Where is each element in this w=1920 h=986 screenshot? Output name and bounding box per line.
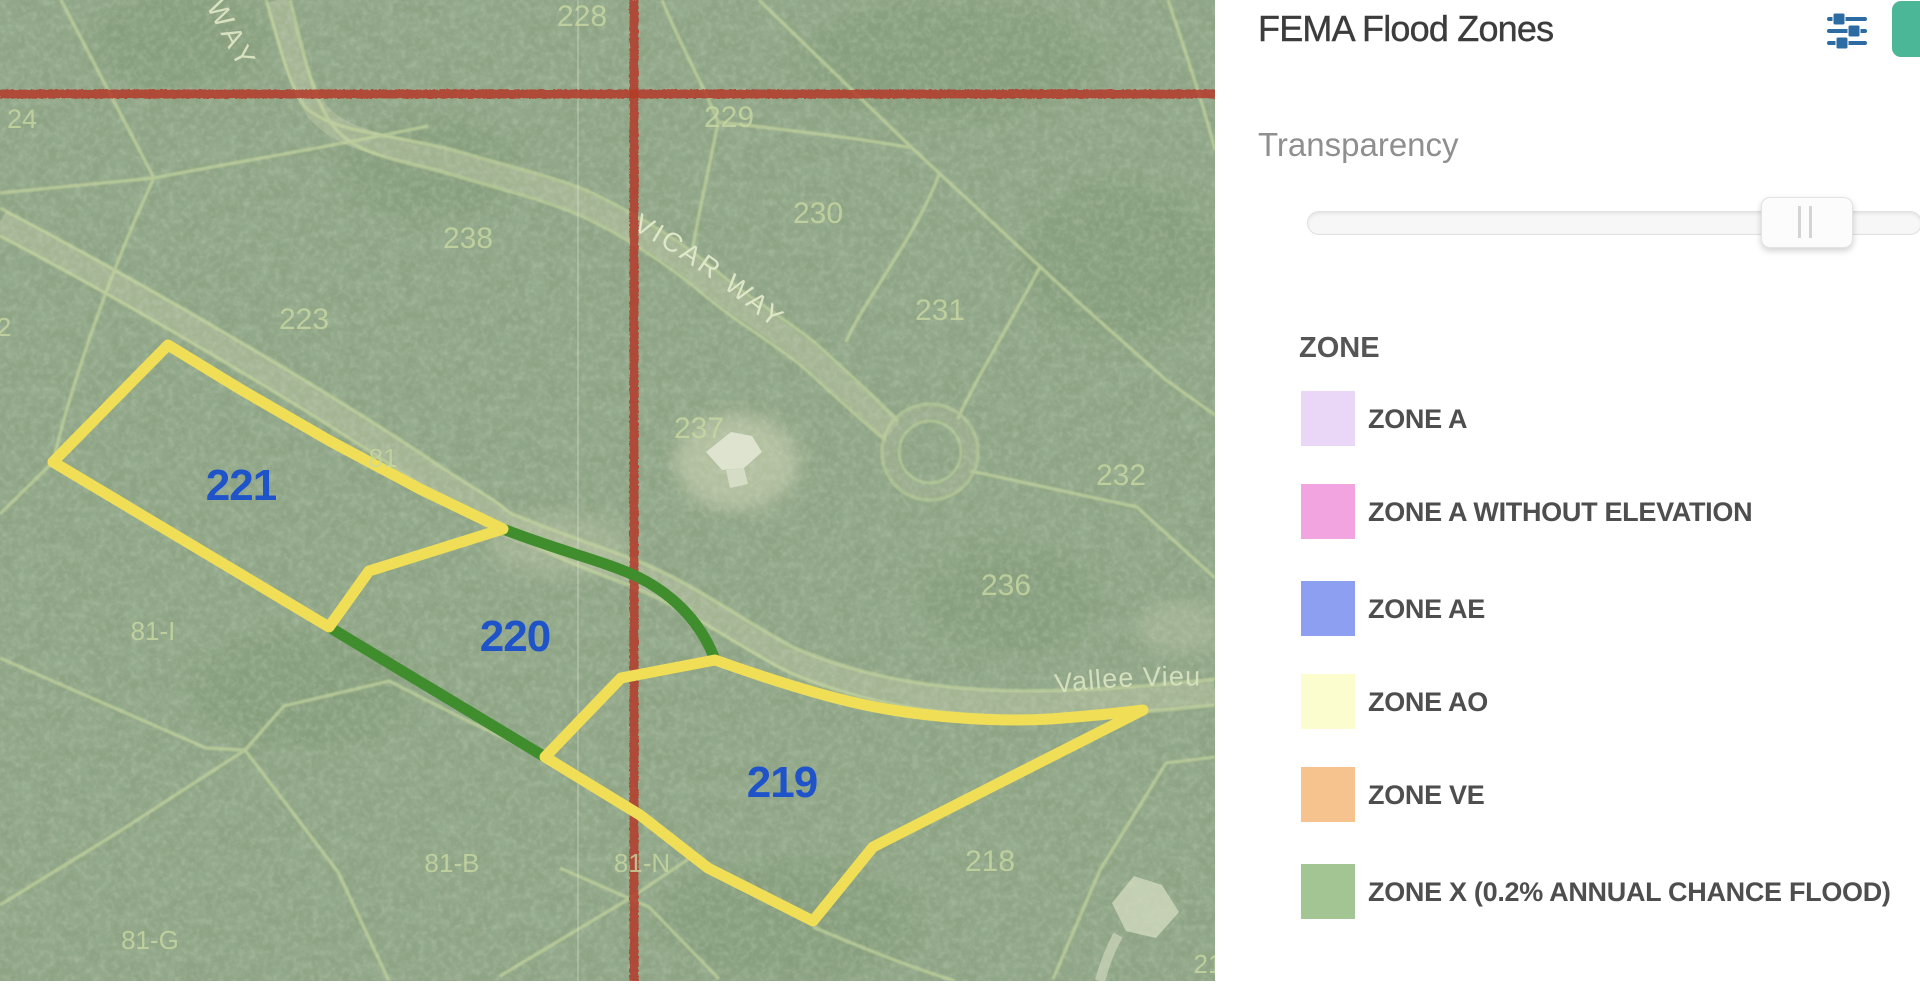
svg-text:228: 228 [557, 0, 607, 33]
svg-text:21: 21 [1194, 949, 1215, 979]
svg-text:223: 223 [279, 303, 329, 336]
svg-text:218: 218 [965, 845, 1015, 878]
svg-text:236: 236 [981, 569, 1031, 602]
svg-text:237: 237 [674, 412, 724, 445]
svg-text:229: 229 [704, 101, 754, 134]
svg-text:81: 81 [369, 443, 398, 473]
svg-text:81-N: 81-N [614, 848, 670, 878]
svg-text:238: 238 [443, 222, 493, 255]
svg-text:231: 231 [915, 294, 965, 327]
svg-text:232: 232 [1096, 459, 1146, 492]
svg-text:230: 230 [793, 197, 843, 230]
svg-text:221: 221 [206, 461, 277, 510]
svg-text:219: 219 [747, 758, 817, 807]
svg-text:2: 2 [0, 312, 11, 342]
svg-text:81-B: 81-B [425, 848, 480, 878]
svg-text:220: 220 [480, 612, 550, 661]
svg-text:24: 24 [7, 104, 37, 134]
svg-text:81-I: 81-I [131, 616, 176, 646]
svg-text:81-G: 81-G [121, 925, 179, 955]
